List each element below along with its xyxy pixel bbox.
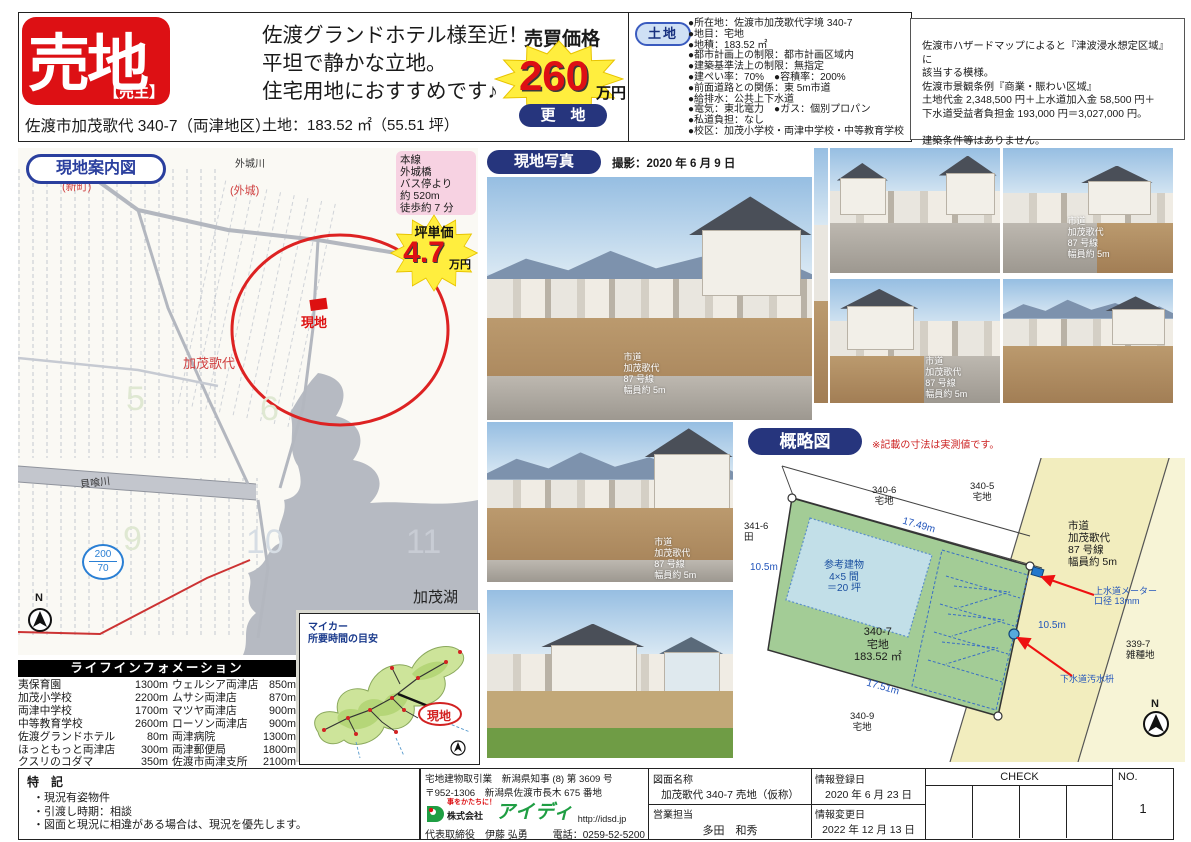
property-address: 佐渡市加茂歌代 340-7（両津地区） [25,114,270,136]
company-url: http://idsd.jp [578,814,627,824]
check-box: CHECK [925,768,1114,840]
site-photo-5: 市道 加茂歌代 87 号線 幅員約 5m [487,422,733,582]
map-route-shield: 200 70 [82,544,124,580]
life-info-row: ムサシ両津店870m [172,692,296,705]
route-number-top: 200 [89,548,117,562]
number-box: NO. 1 [1112,768,1174,840]
photo-strip [814,148,828,403]
sketch-title-badge: 概略図 [748,428,862,455]
site-photo-main: 市道 加茂歌代 87 号線 幅員約 5m [487,177,812,420]
place-distance: 1300m [263,731,296,744]
site-photo-4 [1003,279,1173,403]
map-grid-number: 5 [126,380,145,419]
property-detail-line: ●地目：宅地 [688,30,908,41]
life-info-row: 中等教育学校2600m [18,718,168,731]
life-info-row: マツヤ両津店900m [172,705,296,718]
place-name: ウェルシア両津店 [172,679,258,692]
remarks-list: ・現況有姿物件・引渡し時期：相談・図面と現況に相違がある場合は、現況を優先します… [33,792,419,833]
place-name: 夷保育園 [18,679,61,692]
company-tel: 電話：0259-52-5200 [553,826,645,840]
check-label: CHECK [926,769,1113,786]
site-photo-1 [830,148,1000,273]
life-info-header: ライフインフォメーション [18,660,296,677]
number-value: 1 [1113,801,1173,816]
dim-right: 10.5m [1038,620,1066,632]
map-label-lake: 加茂湖 [413,586,458,607]
place-name: 両津郵便局 [172,744,226,757]
company-corp: 株式会社 [447,811,483,821]
drawing-name-value: 加茂歌代 340-7 売地（仮称） [649,787,811,802]
photos-title-badge: 現地写真 [487,150,601,174]
property-details-list: ●所在地：佐渡市加茂歌代字境 340-7●地目：宅地●地積：183.52 ㎡●都… [688,19,908,138]
place-distance: 80m [147,731,168,744]
life-info-row: 加茂小学校2200m [18,692,168,705]
road-overlay-text: 市道 加茂歌代 87 号線 幅員約 5m [925,356,967,400]
drawing-info-box: 図面名称 加茂歌代 340-7 売地（仮称） 営業担当 多田 和秀 情報登録日 … [648,768,927,840]
unit-price-value: 4.7 [396,236,452,270]
building-label: 参考建物 4×5 間 ＝20 坪 [824,560,864,595]
life-info-row: 両津病院1300m [172,731,296,744]
road-overlay-text: 市道 加茂歌代 87 号線 幅員約 5m [1068,216,1110,260]
remarks-title: 特 記 [27,773,419,790]
lot-340-5-label: 340-5 宅地 [970,482,994,504]
place-name: ローソン両津店 [172,718,248,731]
place-distance: 2200m [135,692,168,705]
sales-rep-value: 多田 和秀 [649,822,811,838]
map-grid-number: 6 [260,390,279,429]
parcel-label: 340-7 宅地 183.52 ㎡ [854,626,902,664]
life-info-table: ライフインフォメーション 夷保育園1300m 加茂小学校2200m 両津中学校1… [18,660,296,764]
road-label: 市道 加茂歌代 87 号線 幅員約 5m [1068,520,1117,568]
place-distance: 1800m [263,744,296,757]
route-number-bottom: 70 [84,562,122,575]
idsd-logo-icon [425,804,445,824]
sketch-note: ※記載の寸法は実測値です。 [872,436,999,451]
sketch-diagram: 17.49m 10.5m 10.5m 17.51m 参考建物 4×5 間 ＝20… [742,458,1185,762]
bus-info-box: 本線 外城橋 バス停より 約 520m 徒歩約 7 分 [396,151,476,215]
price-value: 260 [508,52,600,100]
site-photo-6 [487,590,733,758]
updated-date-label: 情報変更日 [815,806,926,821]
photo-shot-date: 撮影：2020 年 6 月 9 日 [612,155,735,171]
sketch-north-label: N [1151,698,1159,711]
place-name: ほっともっと両津店 [18,744,115,757]
life-info-row: ほっともっと両津店300m [18,744,168,757]
place-name: 両津中学校 [18,705,72,718]
property-detail-line: ●前面道路との関係：東 5m市道 [688,84,908,95]
lot-341-6-label: 341-6 田 [744,522,768,544]
place-name: 中等教育学校 [18,718,83,731]
number-label: NO. [1118,771,1173,783]
check-cell[interactable] [973,786,1020,838]
lot-340-9-label: 340-9 宅地 [850,712,874,734]
sewer-label: 下水道汚水枡 [1060,674,1114,684]
drawing-name-label: 図面名称 [653,771,811,786]
updated-date-value: 2022 年 12 月 13 日 [811,822,926,837]
company-box: 宅地建物取引業 新潟県知事 (8) 第 3609 号 〒952-1306 新潟県… [420,768,650,840]
map-label-kamoutadai: 加茂歌代 [183,353,235,372]
road-overlay-text: 市道 加茂歌代 87 号線 幅員約 5m [654,537,696,581]
life-info-row: ローソン両津店900m [172,718,296,731]
map-grid-number: 11 [406,523,441,562]
life-info-row: 両津郵便局1800m [172,744,296,757]
water-meter-label: 上水道メーター 口径 13mm [1094,586,1157,607]
place-distance: 900m [269,718,296,731]
life-info-row: 佐渡グランドホテル80m [18,731,168,744]
map-site-label: 現地 [301,312,327,331]
company-license: 宅地建物取引業 新潟県知事 (8) 第 3609 号 [425,771,649,785]
check-cell[interactable] [1020,786,1067,838]
check-cell[interactable] [1067,786,1113,838]
lot-340-6-label: 340-6 宅地 [872,486,896,508]
place-name: 加茂小学校 [18,692,72,705]
map-grid-number: 9 [123,520,142,559]
flyer-page: 売地 【売主】 佐渡市加茂歌代 340-7（両津地区） 佐渡グランドホテル様至近… [0,0,1191,842]
place-distance: 870m [269,692,296,705]
area-map-title-badge: 現地案内図 [26,154,166,184]
dim-left: 10.5m [750,562,778,574]
place-distance: 2600m [135,718,168,731]
life-info-row: 両津中学校1700m [18,705,168,718]
land-area-text: 土地：183.52 ㎡（55.51 坪） [262,114,459,135]
road-overlay-text: 市道 加茂歌代 87 号線 幅員約 5m [624,352,666,396]
place-name: ムサシ両津店 [172,692,237,705]
place-distance: 900m [269,705,296,718]
place-distance: 300m [141,744,168,757]
place-name: 佐渡グランドホテル [18,731,115,744]
site-photo-3: 市道 加茂歌代 87 号線 幅員約 5m [830,279,1000,403]
catchphrase: 佐渡グランドホテル様至近！ 平坦で静かな立地。 住宅用地におすすめです♪ [262,22,529,106]
company-tagline: 事をかたちに！ [447,799,496,806]
sale-badge: 売地 【売主】 [22,17,170,105]
place-distance: 1300m [135,679,168,692]
place-distance: 850m [269,679,296,692]
drive-time-map-box: マイカー 所要時間の目安 現地 [299,613,480,765]
company-rep: 代表取締役 伊藤 弘勇 [425,826,528,840]
remarks-line: ・引渡し時期：相談 [33,806,419,820]
map-grid-number: 10 [246,523,284,562]
registered-date-label: 情報登録日 [815,771,926,786]
lot-339-7-label: 339-7 雑種地 [1126,640,1155,662]
life-info-row: ウェルシア両津店850m [172,679,296,692]
life-info-col-left: 夷保育園1300m 加茂小学校2200m 両津中学校1700m 中等教育学校26… [18,679,168,782]
map-label-sotojiro-river: 外城川 [235,155,265,170]
sales-rep-label: 営業担当 [653,806,811,821]
company-brand: アイディ [496,797,574,824]
check-cell[interactable] [926,786,973,838]
land-type-badge: 土地 [635,22,691,46]
unit-price-unit: 万円 [446,256,474,272]
registered-date-value: 2020 年 6 月 23 日 [811,787,926,802]
unit-price-starburst: 坪単価 4.7 万円 [390,214,478,292]
map-label-sotojiro: (外城) [230,182,259,198]
remarks-line: ・現況有姿物件 [33,792,419,806]
map-north-label: N [35,592,43,604]
hazard-notes: 佐渡市ハザードマップによると『津波浸水想定区域』に 該当する模様。 佐渡市景観条… [922,40,1174,148]
drive-time-site-label: 現地 [427,707,451,724]
place-name: 両津病院 [172,731,215,744]
remarks-box: 特 記 ・現況有姿物件・引渡し時期：相談・図面と現況に相違がある場合は、現況を優… [18,768,420,840]
price-unit: 万円 [594,82,628,103]
place-distance: 1700m [135,705,168,718]
life-info-row: 夷保育園1300m [18,679,168,692]
life-info-col-right: ウェルシア両津店850m ムサシ両津店870m マツヤ両津店900m ローソン両… [172,679,296,782]
place-name: マツヤ両津店 [172,705,237,718]
sketch-graphic [742,458,1185,762]
drive-time-map-title: マイカー 所要時間の目安 [308,622,378,646]
site-photo-2: 市道 加茂歌代 87 号線 幅員約 5m [1003,148,1173,273]
seller-badge-text: 【売主】 [104,81,164,102]
property-detail-line: ●校区：加茂小学校・両津中学校・中等教育学校 [688,127,908,138]
land-status-badge: 更 地 [519,104,607,127]
remarks-line: ・図面と現況に相違がある場合は、現況を優先します。 [33,819,419,833]
